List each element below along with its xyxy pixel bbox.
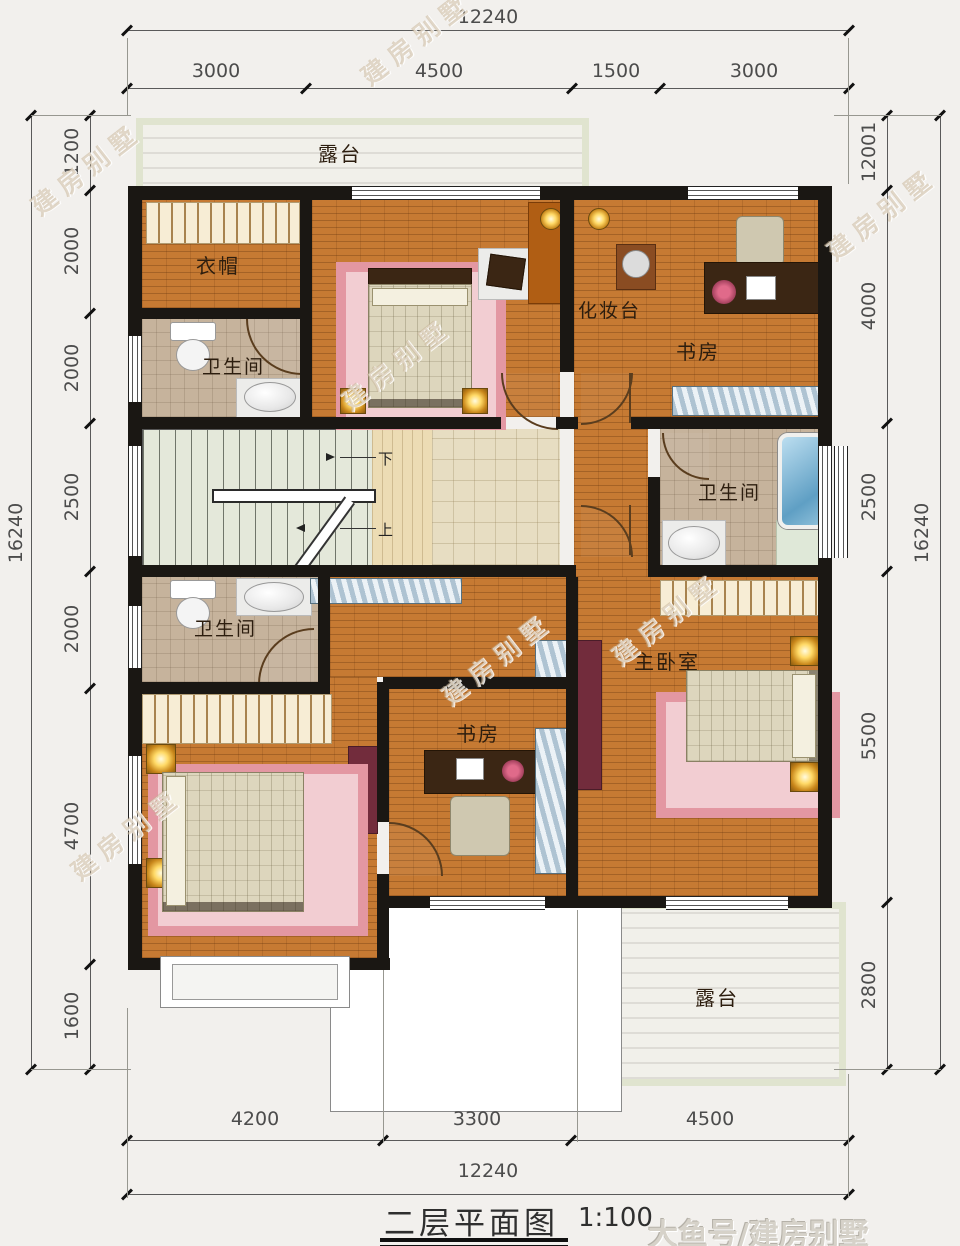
sink: [668, 526, 720, 560]
wall: [377, 682, 389, 822]
floor-plan-canvas: 露台 露台 衣帽 卫生间 化妆台 书房 下 上: [0, 0, 960, 1246]
witness-line: [127, 38, 128, 116]
wall: [128, 308, 300, 319]
witness-line: [848, 38, 849, 184]
cloakroom-wardrobe: [146, 202, 300, 244]
master-bed-pillow: [792, 674, 816, 758]
open-book: [456, 758, 484, 780]
door-leaf: [629, 505, 631, 555]
witness-line: [383, 970, 384, 1142]
dim-seg: 4500: [670, 1108, 750, 1130]
stair-walk-line: [340, 528, 376, 529]
window: [688, 186, 798, 200]
hall-floor: [432, 429, 560, 565]
witness-line: [127, 1008, 128, 1198]
cloakroom-label: 衣帽: [196, 250, 240, 279]
bedroom-wardrobe: [142, 694, 332, 744]
window: [666, 896, 788, 910]
sink: [244, 382, 296, 412]
nightstand-lamp: [790, 636, 820, 666]
wall: [648, 477, 660, 577]
watermark-corner: 大鱼号/建房别墅: [648, 1210, 869, 1246]
open-book: [746, 276, 776, 300]
witness-line: [834, 1069, 941, 1070]
terrace-top-label: 露台: [318, 138, 362, 167]
sink: [244, 582, 304, 612]
vanity-mirror: [622, 250, 650, 278]
dim-line: [887, 115, 888, 1069]
wall: [128, 417, 501, 429]
window: [430, 896, 545, 910]
dim-line: [90, 115, 91, 1069]
dim-seg: 3300: [437, 1108, 517, 1130]
witness-line: [577, 910, 578, 1142]
dim-line: [127, 1140, 849, 1141]
dim-seg: 1600: [61, 976, 83, 1056]
stair-down-label: 下: [378, 448, 393, 469]
witness-line: [31, 115, 131, 116]
dim-total-bottom: 12240: [430, 1160, 546, 1182]
bathroom-upper-left-label: 卫生间: [202, 352, 265, 379]
dim-seg: 2000: [61, 211, 83, 291]
wall: [300, 200, 312, 417]
nightstand-lamp: [790, 762, 820, 792]
wall: [648, 565, 832, 577]
wall: [631, 417, 832, 429]
dim-seg: 2500: [858, 457, 880, 537]
computer-monitor: [486, 254, 526, 291]
terrace-bottom-label: 露台: [695, 982, 739, 1011]
wall: [318, 577, 330, 694]
wall: [560, 200, 574, 372]
dim-seg: 2800: [858, 945, 880, 1025]
dim-line: [127, 1194, 849, 1195]
dim-line: [940, 115, 941, 1069]
dim-total-left: 16240: [5, 493, 27, 573]
stair-up-label: 上: [378, 519, 393, 540]
dim-seg: 2500: [61, 457, 83, 537]
flower-vase: [712, 280, 736, 304]
witness-line: [31, 1069, 131, 1070]
dressing-table-label: 化妆台: [578, 296, 641, 323]
wall: [128, 682, 330, 694]
wall: [128, 565, 576, 577]
dim-seg: 5500: [858, 696, 880, 776]
desk-chair: [736, 216, 784, 266]
window: [128, 446, 142, 556]
dim-line: [127, 30, 849, 31]
dim-seg: 4000: [858, 266, 880, 346]
glass-panel: [535, 728, 569, 874]
watermark-diagonal: 建房别墅: [818, 158, 944, 268]
drawing-scale: 1:100: [578, 1203, 653, 1233]
window: [128, 336, 142, 402]
door-leaf: [629, 373, 631, 423]
stair-walk-line: [340, 457, 376, 458]
stair-arrow: [296, 524, 305, 532]
display-cabinet: [576, 640, 602, 790]
wall: [556, 417, 578, 429]
witness-line: [848, 1074, 849, 1198]
title-underline-thick: [380, 1238, 568, 1242]
window: [818, 446, 832, 558]
bathroom-lower-left-label: 卫生间: [194, 614, 257, 641]
dim-line: [31, 115, 32, 1069]
dim-seg: 2000: [61, 589, 83, 669]
dim-seg: 3000: [176, 60, 256, 82]
ceiling-lamp: [540, 208, 562, 230]
study-sofa: [672, 386, 820, 416]
study-upper-label: 书房: [676, 336, 720, 365]
wall: [377, 874, 389, 970]
dim-seg: 4200: [215, 1108, 295, 1130]
flower-vase: [502, 760, 524, 782]
wall: [566, 577, 578, 896]
study-lower-label: 书房: [456, 718, 500, 747]
bed-upper-pillow: [372, 288, 468, 306]
window-seat: [310, 578, 462, 604]
window: [352, 186, 540, 200]
drawing-title: 二层平面图: [384, 1198, 559, 1243]
window: [128, 606, 142, 668]
nightstand-lamp: [462, 388, 488, 414]
dim-seg: 1500: [576, 60, 656, 82]
bathroom-right-label: 卫生间: [698, 478, 761, 505]
stair-arrow: [326, 453, 335, 461]
window: [834, 446, 848, 558]
study-chair: [450, 796, 510, 856]
dim-line: [127, 88, 849, 89]
bay-window-inner: [172, 964, 338, 1000]
witness-line: [834, 115, 941, 116]
ceiling-lamp: [588, 208, 610, 230]
dim-seg: 12001: [858, 112, 880, 192]
dim-seg: 2000: [61, 328, 83, 408]
dim-total-right: 16240: [911, 493, 933, 573]
nightstand-lamp: [146, 744, 176, 774]
dim-seg: 3000: [714, 60, 794, 82]
bedroom-upper-door: [501, 373, 558, 430]
